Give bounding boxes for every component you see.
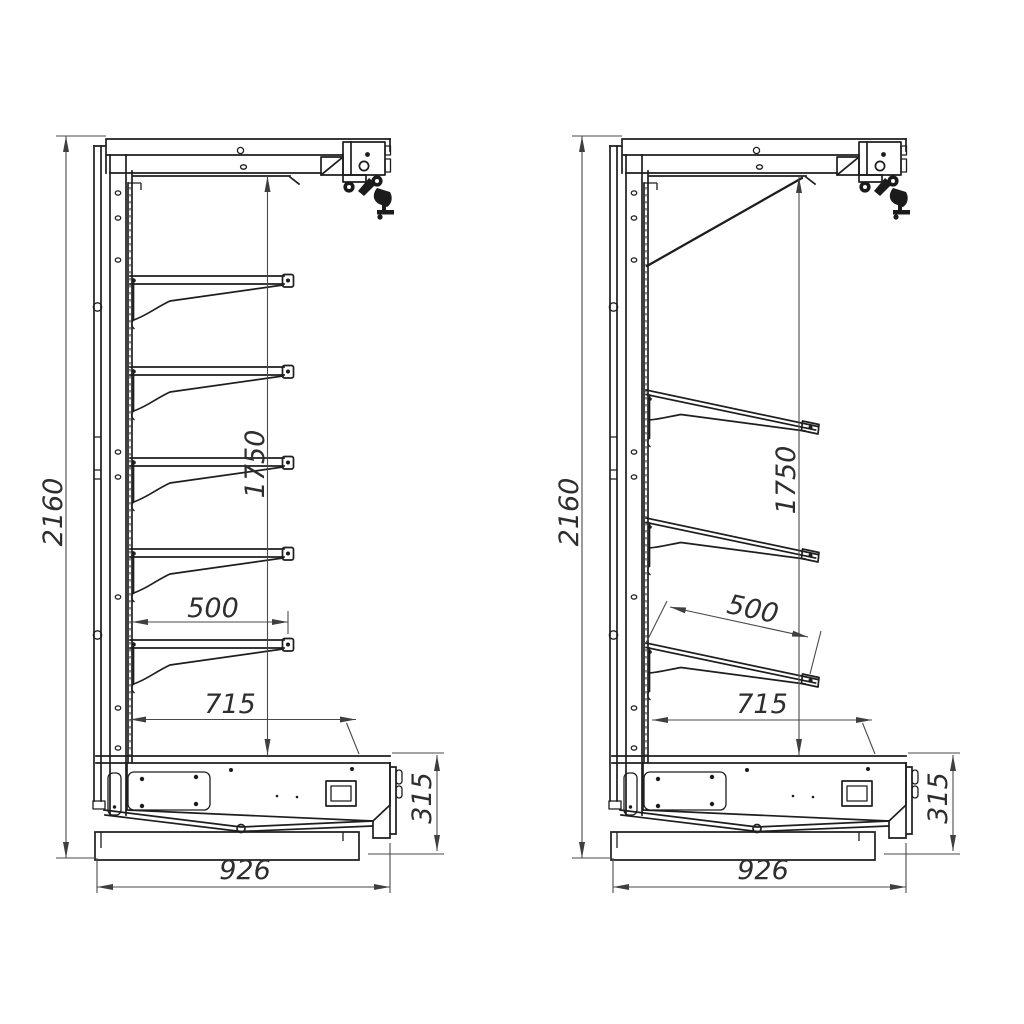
dim-inner-height: 1750 (771, 177, 802, 755)
dim-overall-depth-label: 926 (737, 855, 789, 886)
dim-overall-depth-label: 926 (219, 855, 271, 886)
dim-total-height: 2160 (38, 136, 106, 858)
shelf-inclined (646, 643, 819, 700)
technical-drawing-canvas: 2160 1750 500 715 315 926 (0, 0, 1024, 1024)
shelf-inclined (646, 390, 819, 447)
shelf-horizontal (130, 275, 294, 330)
dim-total-height-label: 2160 (38, 478, 69, 547)
dim-inner-depth: 715 (130, 689, 359, 754)
dim-total-height-label: 2160 (554, 478, 585, 547)
dim-total-height: 2160 (554, 136, 622, 858)
shelf-horizontal (130, 366, 294, 421)
dim-inner-depth-label: 715 (736, 689, 788, 720)
dim-inner-height: 1750 (240, 176, 271, 755)
dim-inner-depth: 715 (652, 689, 875, 754)
figure-left-view: 2160 1750 500 715 315 926 (38, 136, 444, 893)
air-curtain-diagonal (647, 178, 802, 266)
figure-right-view: 2160 1750 500 715 315 926 (554, 136, 960, 893)
dim-overall-depth: 926 (97, 843, 390, 893)
dim-shelf-depth-label: 500 (724, 589, 781, 630)
dim-shelf-depth: 500 (132, 593, 288, 634)
dim-inner-depth-label: 715 (204, 689, 256, 720)
dim-inner-height-label: 1750 (240, 430, 271, 499)
shelf-horizontal (130, 639, 294, 694)
dim-overall-depth: 926 (613, 843, 906, 893)
dim-base-height-label: 315 (923, 772, 954, 824)
dim-shelf-depth-label: 500 (187, 593, 239, 624)
dim-inner-height-label: 1750 (771, 446, 802, 515)
unit-shell (609, 139, 918, 860)
shelf-inclined (646, 518, 819, 575)
dim-base-height-label: 315 (407, 772, 438, 824)
